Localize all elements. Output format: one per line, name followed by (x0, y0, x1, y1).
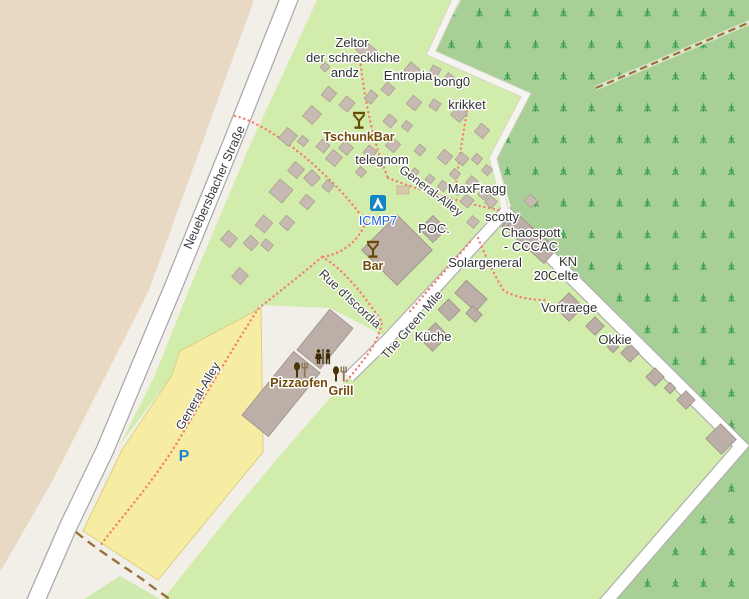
svg-text:MaxFragg: MaxFragg (448, 181, 507, 196)
svg-text:Chaospott: Chaospott (501, 225, 561, 240)
svg-text:KN: KN (559, 254, 577, 269)
svg-text:bong0: bong0 (434, 74, 470, 89)
svg-text:Okkie: Okkie (598, 332, 631, 347)
svg-text:scotty: scotty (485, 209, 519, 224)
svg-text:ICMP7: ICMP7 (359, 214, 397, 228)
svg-text:telegnom: telegnom (355, 152, 408, 167)
svg-text:Vortraege: Vortraege (541, 300, 597, 315)
svg-text:POC.: POC. (418, 221, 450, 236)
svg-text:andz: andz (331, 65, 359, 80)
svg-text:Entropia: Entropia (384, 68, 433, 83)
svg-text:TschunkBar: TschunkBar (323, 130, 394, 144)
svg-text:- CCCAC: - CCCAC (504, 239, 558, 254)
svg-text:der schreckliche: der schreckliche (306, 50, 400, 65)
svg-text:Grill: Grill (328, 384, 353, 398)
svg-text:Küche: Küche (415, 329, 452, 344)
svg-text:P: P (179, 448, 190, 465)
svg-text:Bar: Bar (363, 259, 384, 273)
svg-text:Zeltor: Zeltor (335, 35, 369, 50)
svg-text:krikket: krikket (448, 97, 486, 112)
svg-text:20Celte: 20Celte (534, 268, 579, 283)
svg-text:Solargeneral: Solargeneral (448, 255, 522, 270)
svg-text:Pizzaofen: Pizzaofen (270, 376, 328, 390)
